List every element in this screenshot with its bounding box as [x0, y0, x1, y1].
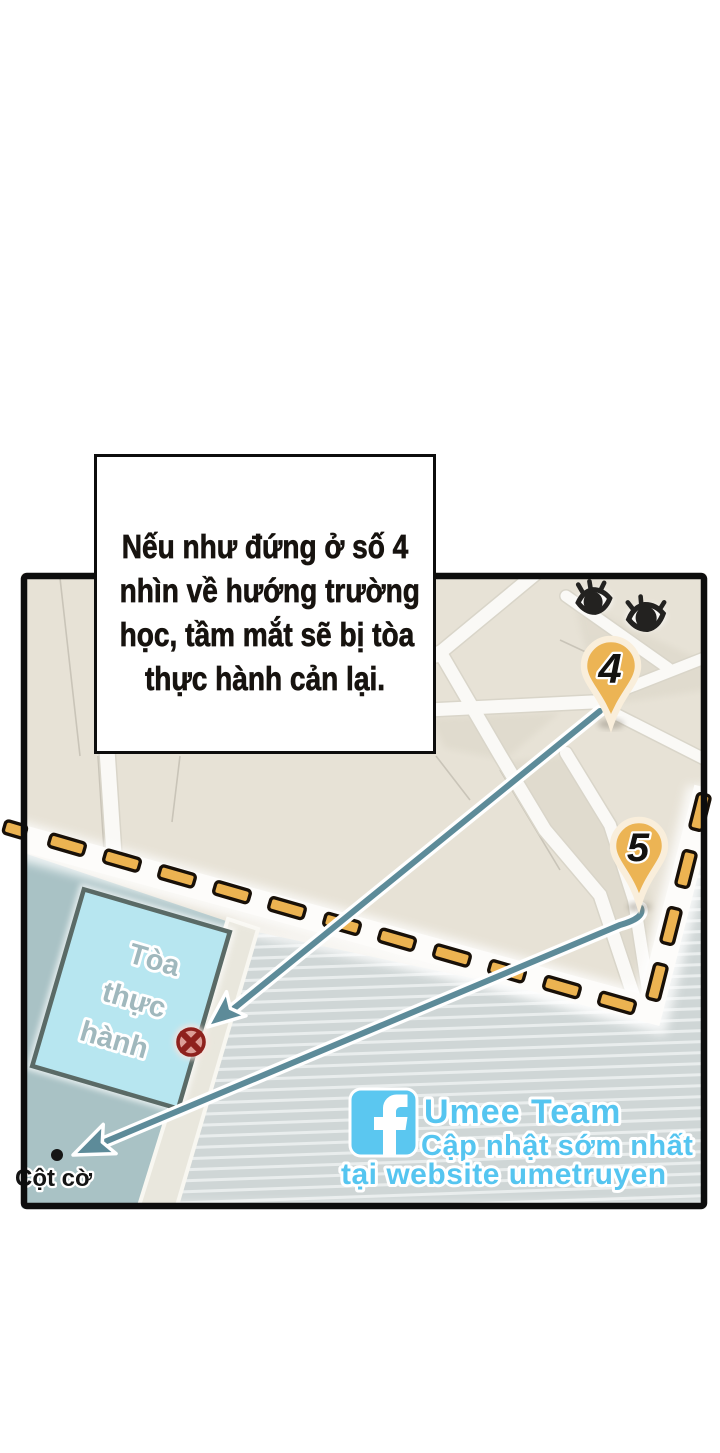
- svg-text:4: 4: [597, 645, 621, 692]
- svg-text:5: 5: [627, 826, 650, 870]
- svg-text:tại website umetruyen: tại website umetruyen: [341, 1158, 667, 1191]
- svg-text:Umee Team: Umee Team: [424, 1093, 621, 1131]
